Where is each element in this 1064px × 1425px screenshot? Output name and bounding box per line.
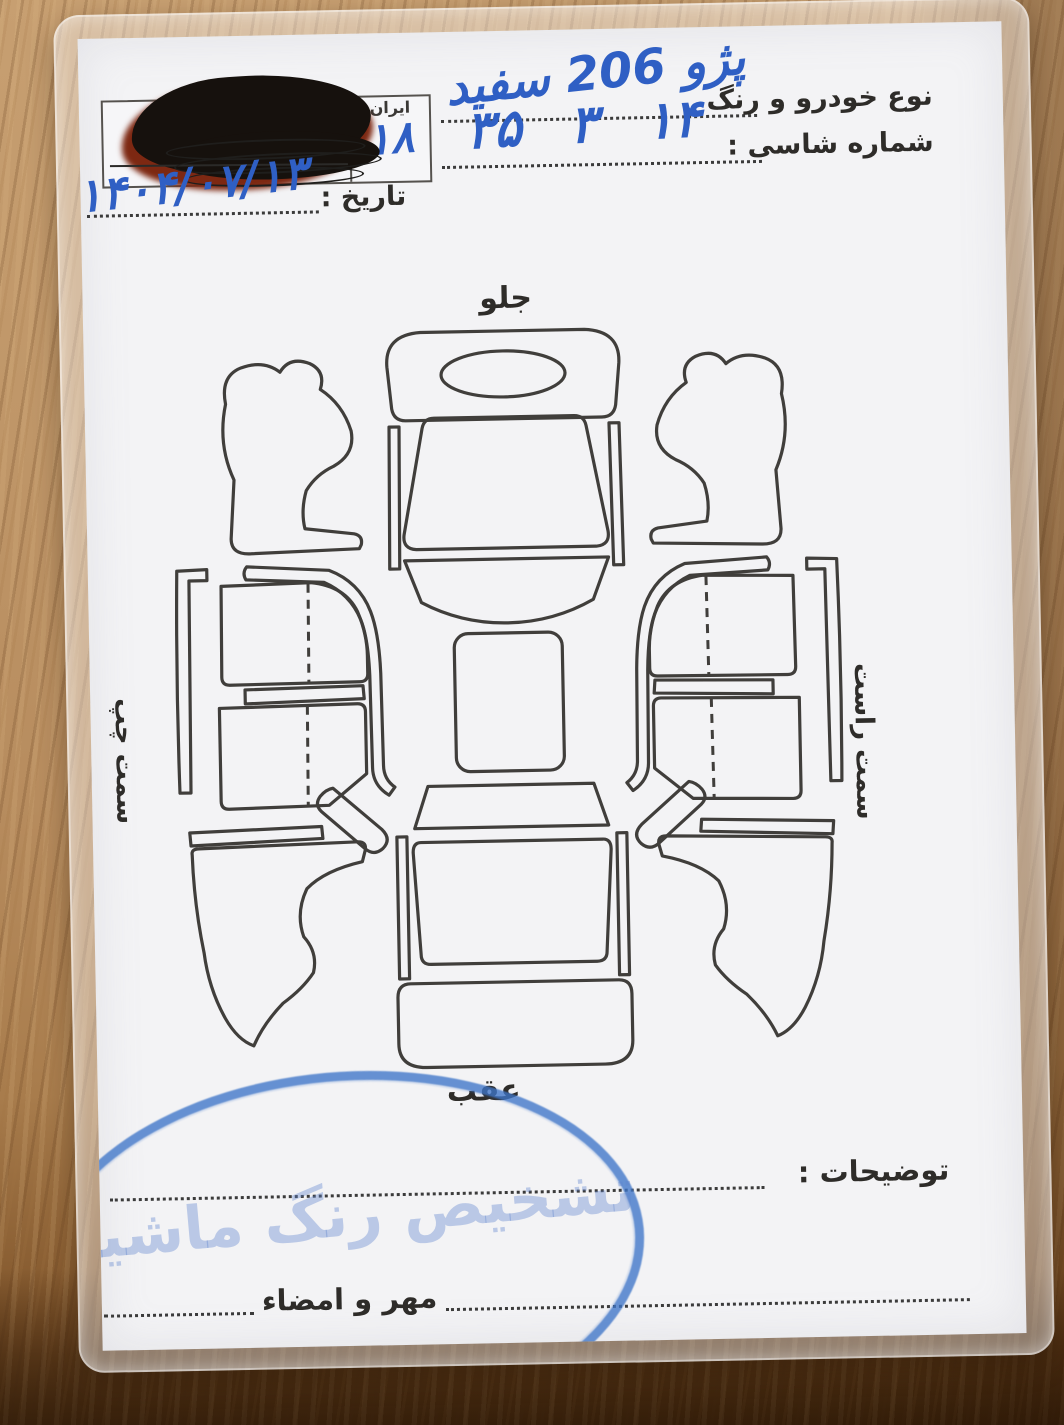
windshield-panel	[405, 557, 610, 625]
comments-label: توضیحات :	[798, 1153, 950, 1190]
inspection-card: پژو 206 سفید نوع خودرو و رنگ ایران ۱۸ ۱۴…	[78, 21, 1027, 1350]
photo-background-wood-table: پژو 206 سفید نوع خودرو و رنگ ایران ۱۸ ۱۴…	[0, 0, 1064, 1425]
right-side-panels	[619, 351, 848, 1039]
left-side-panels	[171, 359, 400, 1047]
date-label: تاریخ :	[320, 181, 406, 214]
chassis-dotted-line	[442, 136, 762, 169]
diagram-front-label: جلو	[462, 280, 549, 317]
rear-bumper-panel	[398, 980, 634, 1068]
center-panels	[385, 329, 633, 1068]
hood-panel	[402, 415, 609, 550]
rear-side-strip-left	[397, 837, 410, 979]
date-dotted-line	[86, 186, 318, 217]
front-side-strip-left	[387, 427, 402, 569]
trunk-lid-panel	[413, 839, 613, 965]
front-bumper-panel	[386, 329, 620, 421]
vehicle-type-label: نوع خودرو و رنگ	[706, 81, 933, 116]
car-panels-diagram	[127, 271, 933, 1123]
diagram-left-side-label: سمت چپ	[107, 614, 141, 825]
rear-side-strip-right	[617, 833, 630, 975]
chassis-number-label: شماره شاسی :	[727, 127, 934, 162]
roof-panel	[454, 632, 565, 772]
diagram-right-side-label: سمت راست	[846, 580, 881, 821]
laminate-sleeve: پژو 206 سفید نوع خودرو و رنگ ایران ۱۸ ۱۴…	[53, 0, 1055, 1373]
front-bumper-plate-slot	[441, 350, 566, 398]
front-side-strip-right	[609, 423, 624, 565]
rear-window-panel	[414, 783, 609, 829]
